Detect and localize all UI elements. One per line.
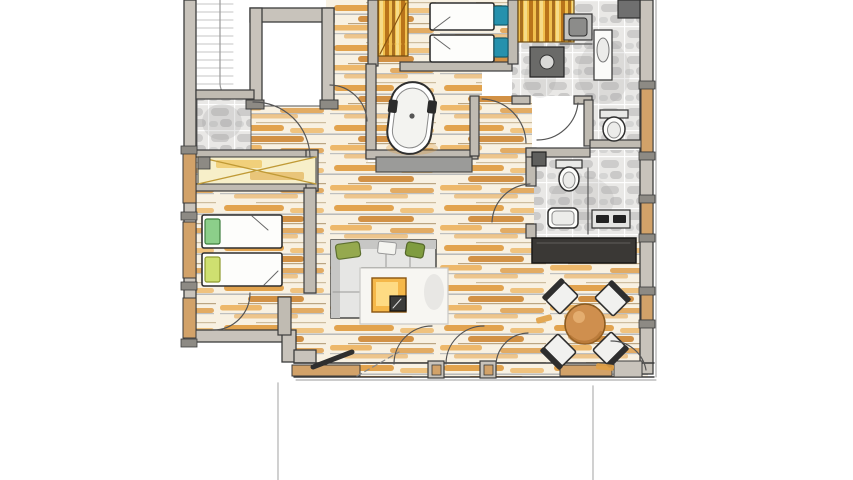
sill-bracket xyxy=(639,287,655,295)
elevator-shaft-foot-right xyxy=(320,100,338,109)
wall-bedroom1-bath xyxy=(508,0,518,64)
window-right-2 xyxy=(641,202,653,234)
window-left-1 xyxy=(183,153,196,203)
wall-bath-bottom-a xyxy=(512,96,530,104)
sofa-cushion-green-a xyxy=(335,241,361,259)
rug-shading xyxy=(424,274,444,310)
cooktop-burner-a xyxy=(596,215,609,223)
tub-faucet-right xyxy=(427,100,438,114)
bed-2-pillow xyxy=(494,38,508,57)
sink-wc-inner xyxy=(552,211,574,225)
dining-table-highlight xyxy=(573,311,585,323)
bed-1 xyxy=(430,3,494,30)
wall-bath-step xyxy=(584,100,593,146)
wall-tub-right xyxy=(470,96,479,156)
sill-bracket xyxy=(181,212,197,220)
wall-hall-tub xyxy=(366,64,376,158)
wall-wardrobe-top xyxy=(196,150,318,157)
elevator-shaft-interior xyxy=(262,20,322,106)
facade-post-b-core xyxy=(484,365,493,375)
sill-bracket xyxy=(639,81,655,89)
cooktop-burner-b xyxy=(613,215,626,223)
wall-bedroom2-step xyxy=(278,297,291,335)
tub-drain xyxy=(409,113,414,118)
sill-bracket xyxy=(181,146,197,154)
bed-4-pillow xyxy=(205,257,220,282)
wall-stairs-entry xyxy=(196,90,254,99)
tv-box xyxy=(390,296,406,311)
sill-bracket xyxy=(181,282,197,290)
wall-step-b xyxy=(294,350,316,363)
sill-bracket xyxy=(181,339,197,347)
facade-post-a-core xyxy=(432,365,441,375)
wall-exterior-bottom-left xyxy=(184,330,288,342)
bed-3-pillow xyxy=(205,219,220,244)
floor-plan xyxy=(0,0,853,480)
elevator-shaft-foot-left xyxy=(246,100,264,109)
kitchen-counter xyxy=(532,238,636,263)
wardrobe-hall-cap xyxy=(198,157,210,169)
window-bottom-left xyxy=(292,365,360,376)
tub-faucet-left xyxy=(388,99,399,113)
floor-plan-svg xyxy=(0,0,853,480)
wall-bedroom1-bottom xyxy=(400,62,512,71)
sill-bracket xyxy=(639,152,655,160)
vanity-basin xyxy=(597,38,609,62)
window-left-3 xyxy=(183,298,196,338)
sill-bracket xyxy=(639,320,655,328)
sill-bracket xyxy=(639,195,655,203)
sofa-cushion-white xyxy=(377,241,396,255)
sideboard xyxy=(376,157,472,172)
wall-hall-bedroom1 xyxy=(368,0,378,66)
wall-wardrobe-bottom xyxy=(196,184,318,191)
elevator-shaft-wall-left xyxy=(250,8,262,102)
wall-bedroom2-right xyxy=(304,188,316,293)
shower-head xyxy=(569,18,587,36)
wc-control-box xyxy=(532,152,546,166)
bed-2 xyxy=(430,35,494,62)
window-right-1 xyxy=(641,88,653,152)
elevator-shaft-wall-right xyxy=(322,8,334,102)
sill-bracket xyxy=(639,234,655,242)
duct-top-right xyxy=(618,0,640,18)
sofa-cushion-green-b xyxy=(405,242,425,259)
bed-1-pillow xyxy=(494,6,508,25)
toilet-ensuite-inner xyxy=(608,122,621,138)
window-left-2 xyxy=(183,222,196,278)
tile-shading-entry xyxy=(202,104,242,140)
toilet-wc-inner xyxy=(563,172,575,188)
washbasin-bowl xyxy=(540,55,554,69)
wall-wc-left-lower xyxy=(526,224,536,238)
corner-block-bottom-right xyxy=(614,361,642,377)
